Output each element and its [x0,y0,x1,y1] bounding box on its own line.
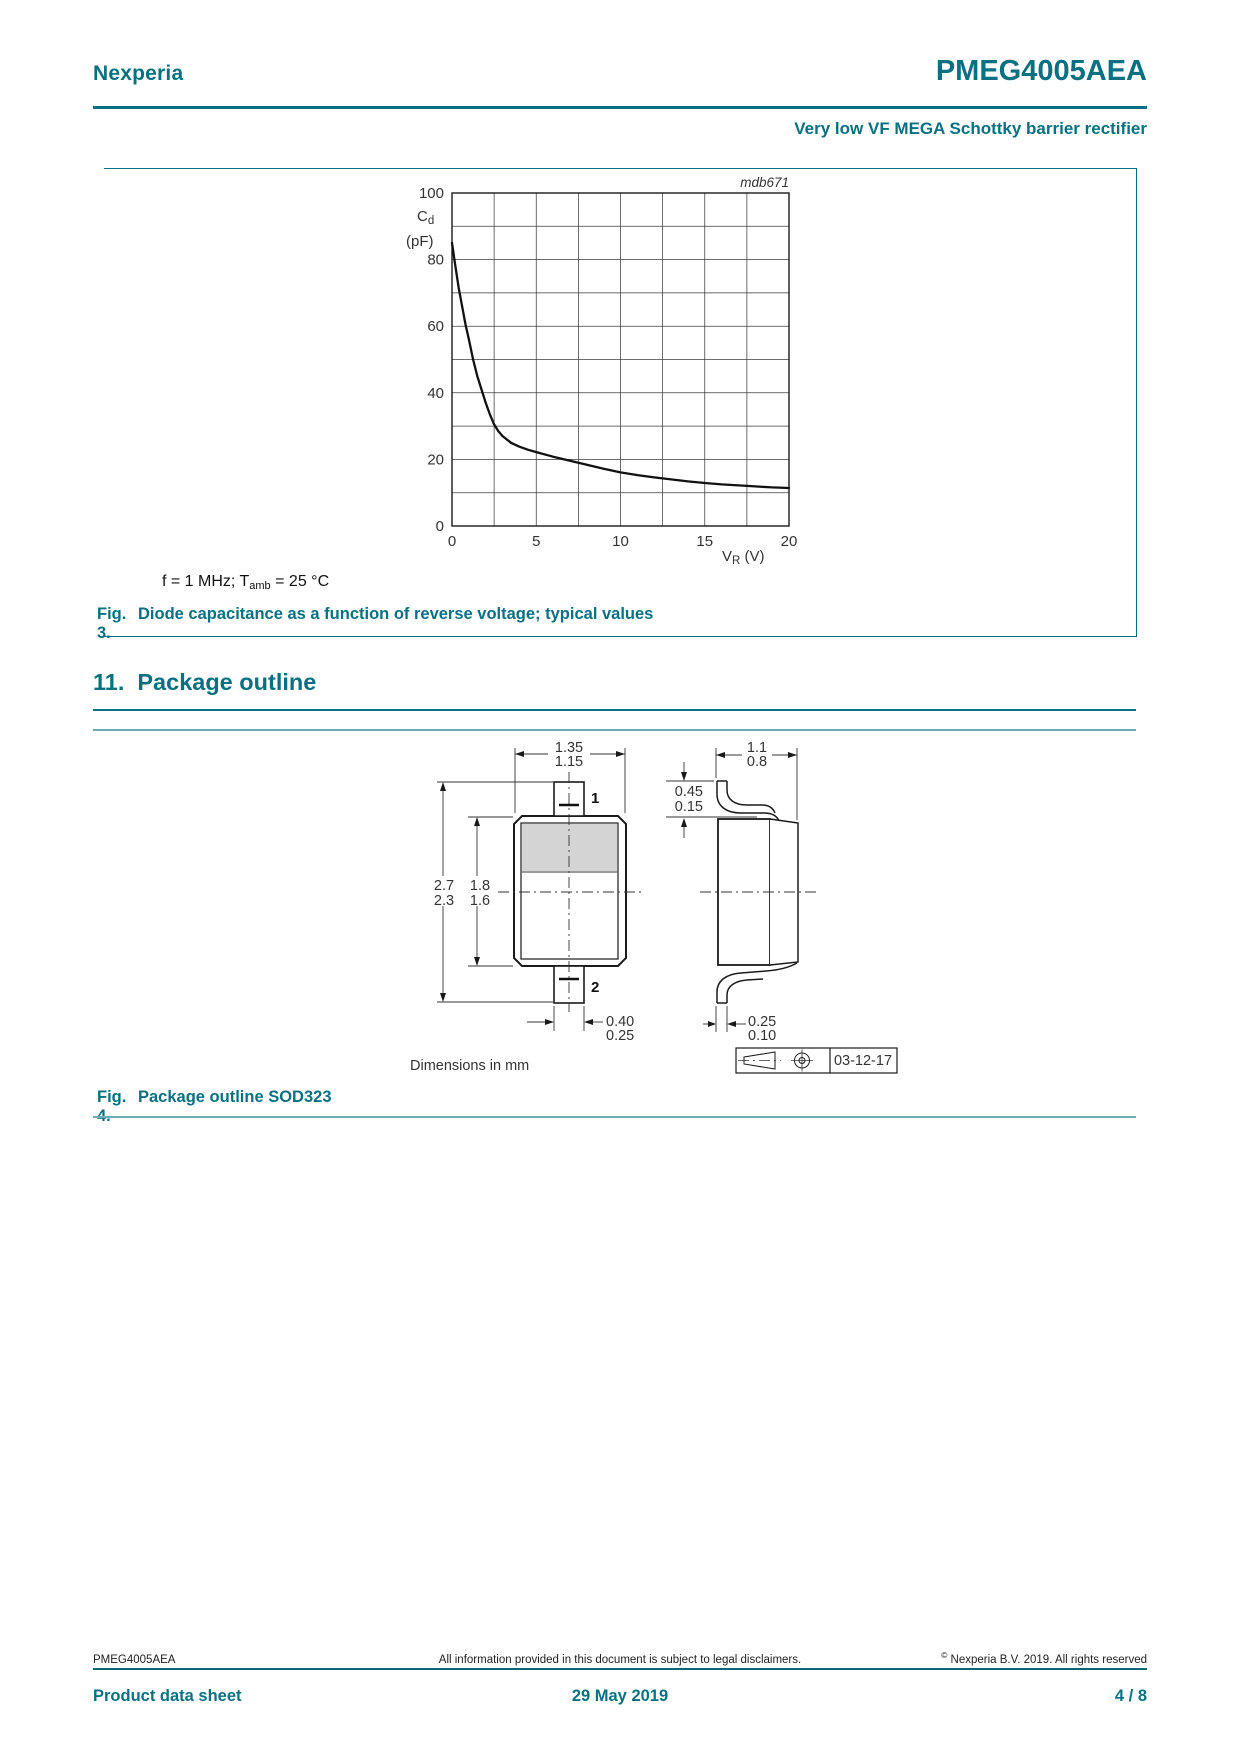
footer-info-row: Product data sheet 29 May 2019 4 / 8 [93,1687,1147,1706]
svg-text:80: 80 [427,252,444,269]
dim-lead-thick-min: 0.10 [748,1028,776,1044]
dim-body-height-max: 1.8 [470,878,490,894]
footer-part-number: PMEG4005AEA [93,1654,439,1666]
section-heading-rule [93,709,1136,711]
dim-lead-clear-max: 0.45 [675,784,703,800]
svg-text:20: 20 [781,533,798,550]
chart-condition-note: f = 1 MHz; Tamb = 25 °C [162,573,329,592]
y-axis-unit: (pF) [406,233,434,250]
fig3-caption: Fig. 3. Diode capacitance as a function … [97,605,653,643]
page-subtitle: Very low VF MEGA Schottky barrier rectif… [794,119,1147,139]
fig3-number: Fig. 3. [97,605,138,643]
pin2-label: 2 [591,979,599,996]
svg-text:40: 40 [427,385,444,402]
datasheet-page: Nexperia PMEG4005AEA Very low VF MEGA Sc… [0,0,1240,1754]
projection-symbol-box: 03-12-17 [736,1048,897,1073]
footer-date: 29 May 2019 [572,1687,668,1706]
header-rule [93,106,1147,109]
plot-id-label: mdb671 [740,175,789,190]
svg-text:0: 0 [448,533,456,550]
svg-text:10: 10 [612,533,629,550]
dim-height-outer-min: 2.3 [434,893,454,909]
fig4-number: Fig. 4. [97,1088,138,1126]
svg-text:20: 20 [427,451,444,468]
section-title: Package outline [137,669,316,695]
x-axis-label: VR (V) [722,548,765,567]
footer-doc-type: Product data sheet [93,1687,572,1706]
revision-date: 03-12-17 [834,1053,892,1069]
fig4-caption-text: Package outline SOD323 [138,1088,332,1126]
chart-plot-area: 05101520020406080100 [419,185,797,550]
front-view: 2.7 2.3 1.8 1.6 1.35 1.15 [434,740,642,1044]
fig4-caption: Fig. 4. Package outline SOD323 [97,1088,332,1126]
section-number: 11. [93,669,124,695]
dim-height-outer-max: 2.7 [434,878,454,894]
svg-text:60: 60 [427,318,444,335]
brand-logo-text: Nexperia [93,62,183,86]
fig4-frame-bottom-line [93,1116,1136,1118]
footer-page-number: 4 / 8 [668,1687,1147,1706]
dimensions-note: Dimensions in mm [410,1058,529,1074]
cathode-band [522,824,617,872]
footer-copyright: © Nexperia B.V. 2019. All rights reserve… [801,1650,1147,1666]
dim-body-height-min: 1.6 [470,893,490,909]
svg-text:0: 0 [436,518,444,535]
capacitance-chart: 05101520020406080100 mdb671 Cd (pF) VR (… [395,172,805,570]
svg-text:15: 15 [696,533,713,550]
svg-text:100: 100 [419,185,444,202]
side-view: 1.1 0.8 0.45 0.15 [666,740,820,1044]
svg-text:5: 5 [532,533,540,550]
fig4-frame-top-line [93,729,1136,731]
footer-disclaimer: All information provided in this documen… [439,1654,801,1666]
part-number-title: PMEG4005AEA [936,55,1147,88]
dim-lead-width-min: 0.25 [606,1028,634,1044]
dim-side-width-min: 0.8 [747,754,767,770]
pin1-label: 1 [591,790,599,807]
dim-lead-clear-min: 0.15 [675,799,703,815]
section-heading: 11.Package outline [93,669,316,696]
y-axis-label: Cd [417,208,434,227]
fig3-caption-text: Diode capacitance as a function of rever… [138,605,653,643]
footer-legal-row: PMEG4005AEA All information provided in … [93,1650,1147,1666]
package-outline-drawing: 2.7 2.3 1.8 1.6 1.35 1.15 [400,735,910,1085]
footer-rule [93,1668,1147,1670]
dim-front-width-min: 1.15 [555,754,583,770]
